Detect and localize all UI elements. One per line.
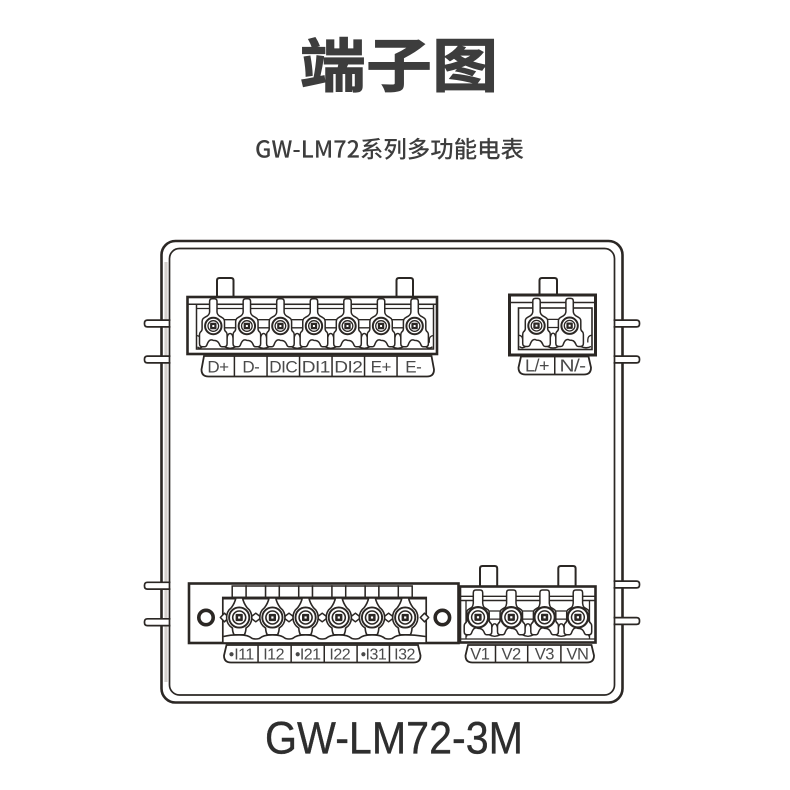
svg-text:E+: E+ — [371, 357, 392, 376]
svg-text:I11: I11 — [234, 646, 254, 663]
svg-text:I22: I22 — [329, 646, 350, 663]
svg-text:I21: I21 — [300, 646, 321, 663]
svg-text:V2: V2 — [502, 646, 522, 664]
svg-text:L/+: L/+ — [525, 356, 549, 376]
svg-text:DIC: DIC — [269, 357, 297, 376]
svg-text:DI2: DI2 — [334, 357, 362, 376]
svg-text:I32: I32 — [394, 646, 415, 663]
svg-text:I12: I12 — [263, 646, 284, 663]
svg-text:DI1: DI1 — [302, 357, 330, 376]
svg-text:D-: D- — [242, 357, 259, 376]
svg-text:VN: VN — [567, 646, 589, 664]
svg-text:V1: V1 — [470, 646, 490, 664]
svg-text:I31: I31 — [366, 646, 387, 663]
svg-text:E-: E- — [405, 357, 421, 376]
svg-text:N/-: N/- — [560, 356, 587, 376]
svg-text:V3: V3 — [535, 646, 555, 664]
svg-text:D+: D+ — [207, 357, 229, 376]
svg-text:GW-LM72-3M: GW-LM72-3M — [265, 713, 523, 764]
